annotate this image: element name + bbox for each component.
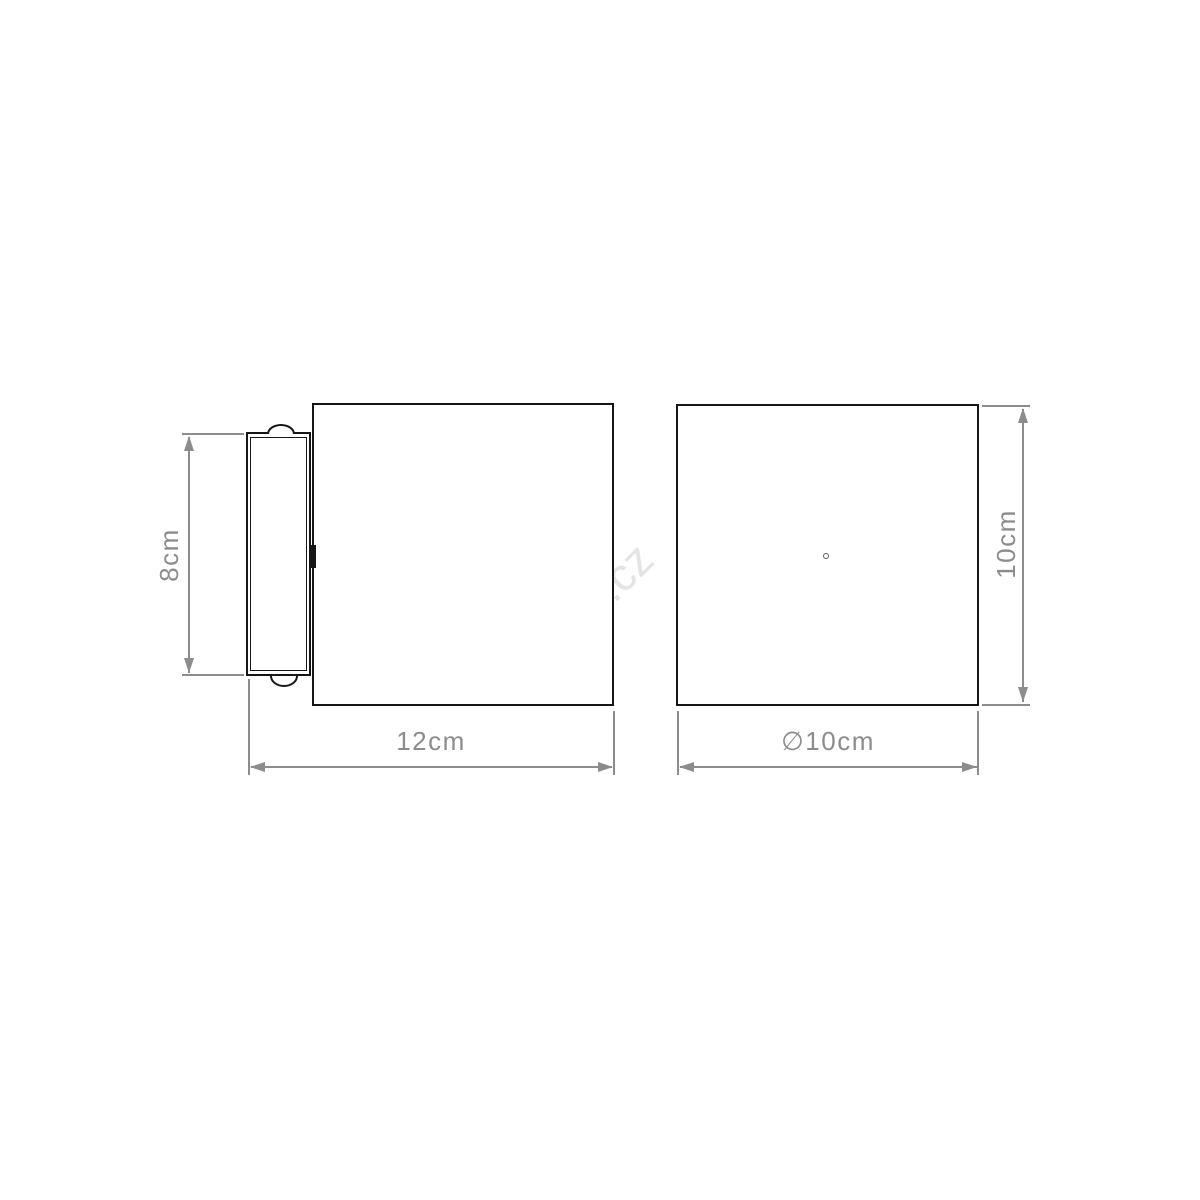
arrow-right-icon xyxy=(962,762,977,772)
dimension-drawing: rent.cz 8cm 12cm xyxy=(0,0,1200,1200)
extension-line xyxy=(977,711,979,775)
arrow-left-icon xyxy=(679,762,694,772)
dimension-line xyxy=(680,766,977,768)
dimension-diameter-10cm: ∅10cm xyxy=(0,0,1200,1200)
dimension-label: ∅10cm xyxy=(758,726,898,756)
front-view: 10cm ∅10cm xyxy=(0,0,1200,1200)
